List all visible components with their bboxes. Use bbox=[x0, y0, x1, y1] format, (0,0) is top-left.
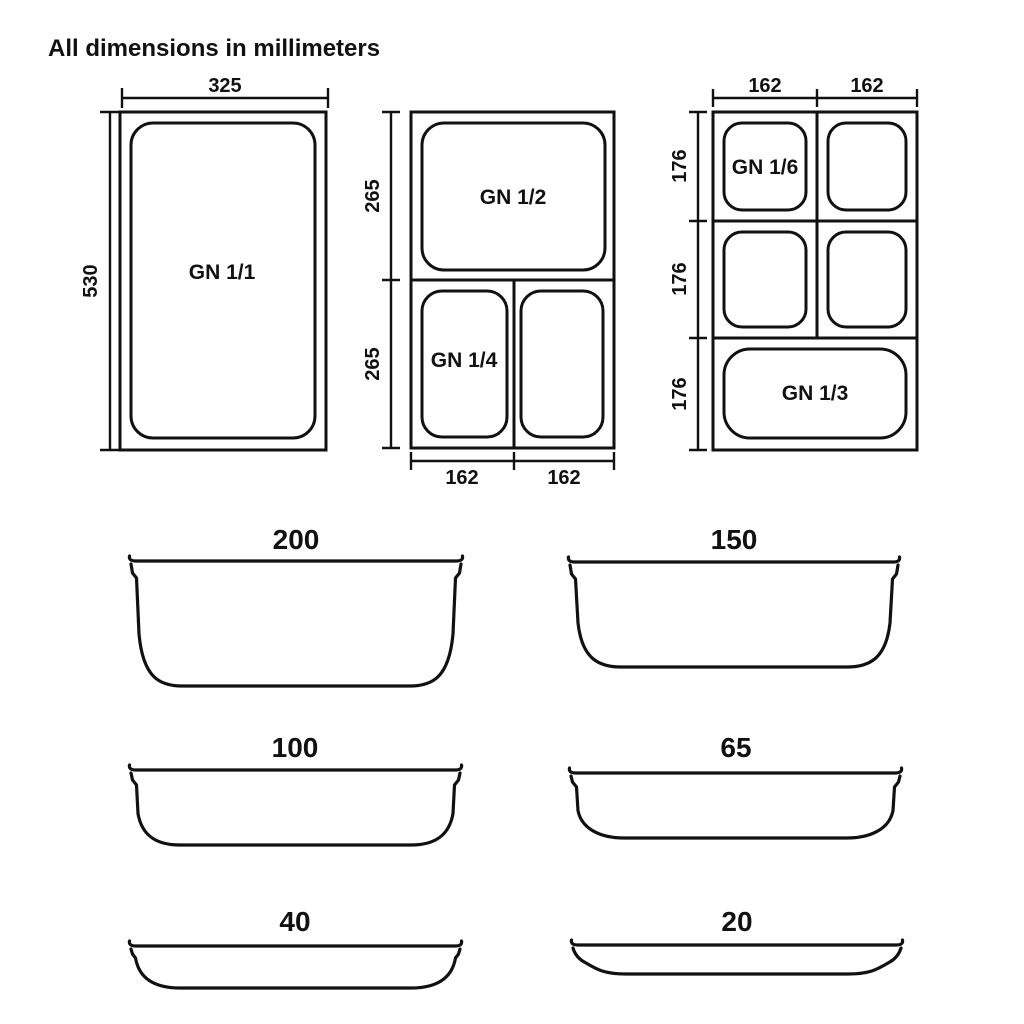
dimension-label-bottom-height: 265 bbox=[362, 347, 384, 380]
dimension-label-height: 530 bbox=[80, 264, 102, 297]
dimension-label-left-width: 162 bbox=[445, 467, 478, 489]
depth-label: 200 bbox=[273, 524, 320, 555]
diagram-canvas: All dimensions in millimeters 325 530 GN… bbox=[0, 0, 1024, 1024]
page-title: All dimensions in millimeters bbox=[48, 35, 380, 62]
gn-1-1-label: GN 1/1 bbox=[189, 261, 256, 284]
dimension-label-top-height: 265 bbox=[362, 179, 384, 212]
depth-label: 150 bbox=[711, 524, 758, 555]
pan-rim bbox=[568, 557, 899, 562]
pan-body bbox=[131, 949, 460, 988]
pan-rim bbox=[571, 940, 902, 945]
pan-body bbox=[570, 565, 898, 667]
pan-body bbox=[131, 564, 461, 686]
depth-label: 20 bbox=[721, 906, 752, 937]
pan-profile-100 bbox=[129, 765, 461, 845]
dimension-label-row1: 176 bbox=[669, 149, 691, 182]
gn-1-6-pan-outline bbox=[724, 232, 806, 327]
pan-profile-65 bbox=[569, 768, 901, 838]
pan-body bbox=[573, 948, 901, 974]
dimension-label-row2: 176 bbox=[669, 262, 691, 295]
dimension-label-right-width: 162 bbox=[850, 75, 883, 97]
gn-1-4-pan-outline bbox=[521, 291, 603, 437]
depth-profiles: 200 150 100 65 40 20 bbox=[129, 524, 902, 988]
dimension-label-left-width: 162 bbox=[748, 75, 781, 97]
gn-1-2-label: GN 1/2 bbox=[480, 186, 547, 209]
pan-rim bbox=[129, 765, 461, 770]
pan-profile-40 bbox=[129, 941, 461, 988]
depth-label: 65 bbox=[720, 732, 751, 763]
gn-1-3-label: GN 1/3 bbox=[782, 382, 849, 405]
pan-body bbox=[131, 773, 460, 845]
depth-label: 40 bbox=[279, 906, 310, 937]
gn-1-6-pan-outline bbox=[828, 232, 906, 327]
gn-1-6-pan-outline bbox=[828, 123, 906, 210]
pan-rim bbox=[129, 556, 462, 561]
depth-label: 100 bbox=[272, 732, 319, 763]
dimension-label-width: 325 bbox=[208, 75, 241, 97]
pan-rim bbox=[129, 941, 461, 946]
plan-view-gn-1-1: 325 530 GN 1/1 bbox=[80, 75, 328, 450]
plan-view-gn-1-6-1-3: 162 162 176 176 176 GN 1/6 GN 1/3 bbox=[669, 75, 917, 450]
technical-drawing: All dimensions in millimeters 325 530 GN… bbox=[0, 0, 1024, 1024]
pan-profile-200 bbox=[129, 556, 462, 686]
dimension-label-row3: 176 bbox=[669, 377, 691, 410]
pan-rim bbox=[569, 768, 901, 773]
pan-body bbox=[571, 776, 900, 838]
pan-profile-150 bbox=[568, 557, 899, 667]
gn-1-6-label: GN 1/6 bbox=[732, 156, 799, 179]
gn-1-4-label: GN 1/4 bbox=[431, 349, 498, 372]
dimension-label-right-width: 162 bbox=[547, 467, 580, 489]
pan-profile-20 bbox=[571, 940, 902, 974]
plan-view-gn-1-2-1-4: 265 265 162 162 GN 1/2 GN 1/4 bbox=[362, 112, 614, 489]
